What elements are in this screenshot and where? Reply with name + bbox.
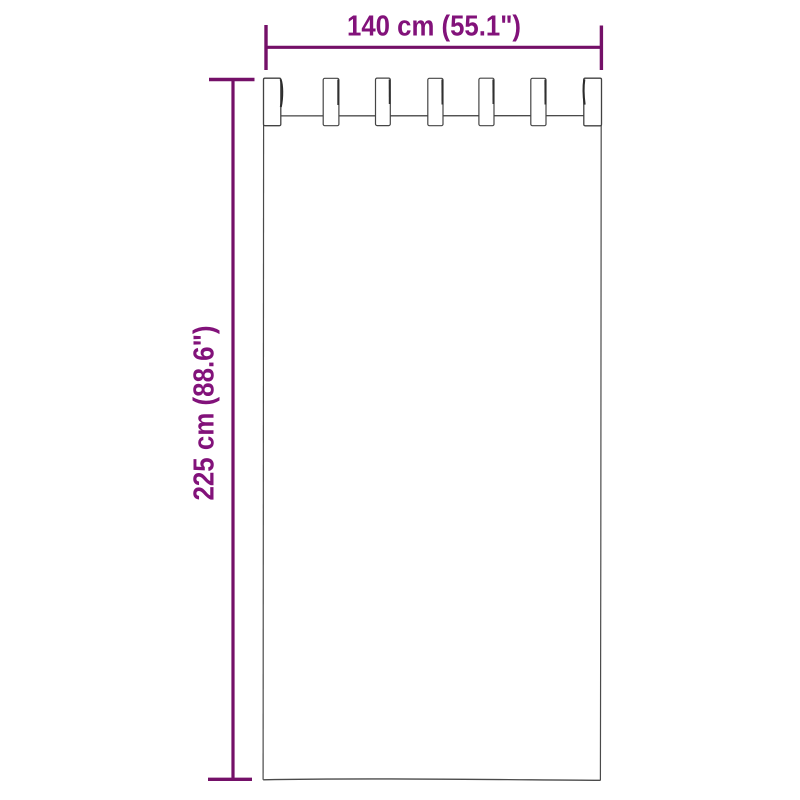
svg-text:225 cm (88.6"): 225 cm (88.6") <box>189 326 221 501</box>
svg-text:140 cm (55.1"): 140 cm (55.1") <box>347 11 521 43</box>
